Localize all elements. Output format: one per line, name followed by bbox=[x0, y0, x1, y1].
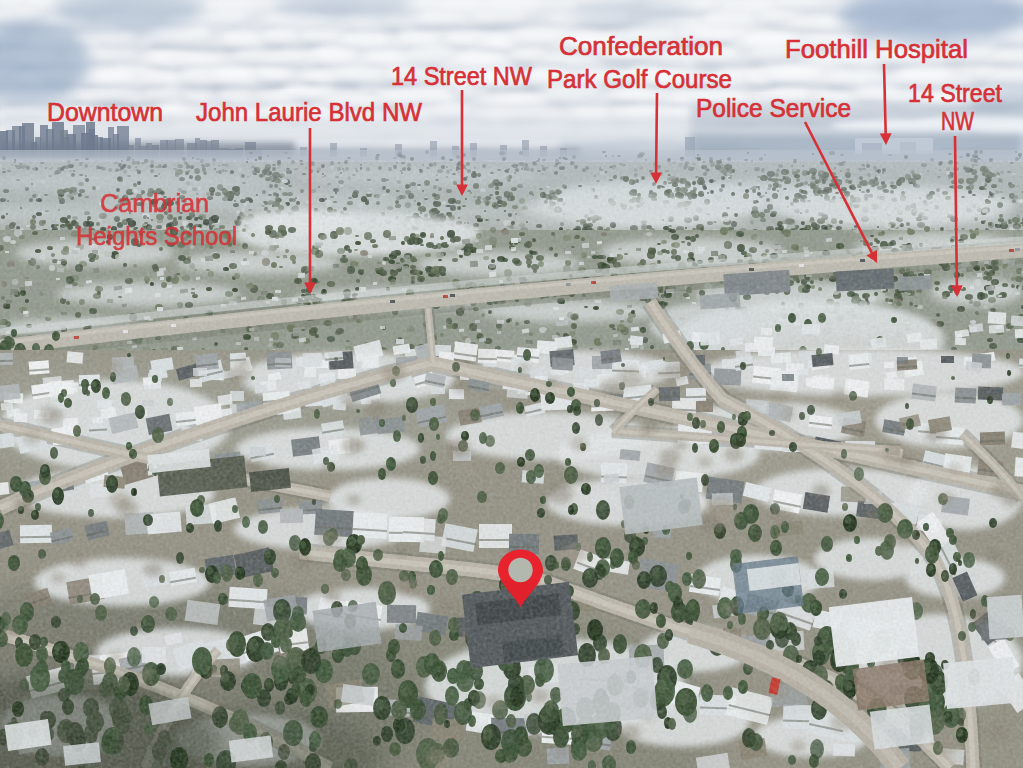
svg-text:14 Street NW: 14 Street NW bbox=[391, 61, 532, 91]
svg-text:Downtown: Downtown bbox=[47, 97, 163, 127]
svg-text:Park Golf Course: Park Golf Course bbox=[547, 64, 732, 94]
svg-text:John Laurie Blvd NW: John Laurie Blvd NW bbox=[196, 97, 422, 127]
svg-text:Police Service: Police Service bbox=[696, 93, 851, 123]
svg-text:Cambrian: Cambrian bbox=[100, 188, 209, 218]
svg-text:14 Street: 14 Street bbox=[908, 78, 1003, 108]
svg-text:NW: NW bbox=[941, 106, 974, 136]
svg-text:Confederation: Confederation bbox=[559, 31, 723, 61]
svg-text:Foothill Hospital: Foothill Hospital bbox=[785, 34, 968, 64]
svg-text:Heights School: Heights School bbox=[76, 221, 237, 251]
